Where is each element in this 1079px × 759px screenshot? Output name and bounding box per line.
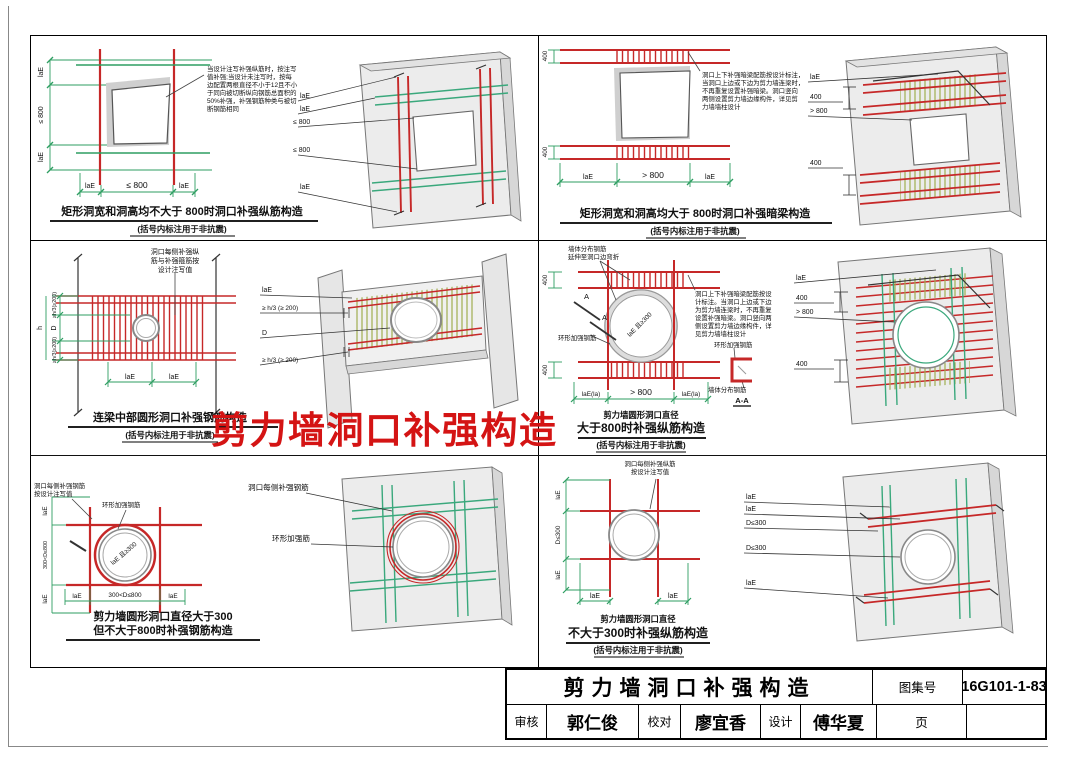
svg-text:边配置两根直径不小于12且不小: 边配置两根直径不小于12且不小 [207,80,298,89]
p6-bot-dim-0: laE [590,593,600,600]
p6-bot-dim-1: laE [668,593,678,600]
p6-3d-label-4: laE [746,580,756,587]
p2-caption: 矩形洞宽和洞高均大于 800时洞口补强暗梁构造 [580,206,811,220]
check-label: 校对 [639,705,681,739]
p3-3d-label-2: D [262,330,267,337]
title-block: 剪力墙洞口补强构造 图集号 16G101-1-83 审核 郭仁俊 校对 廖宜香 … [505,668,1047,740]
p5-bot-dim-2: laE [168,593,177,600]
title-block-row-bottom: 审核 郭仁俊 校对 廖宜香 设计 傅华夏 页 [507,704,1045,739]
p1-3d-label-1: laE [300,106,310,113]
p1-bot-dim-1: ≤ 800 [126,180,148,190]
svg-text:见剪力墙墙柱设计: 见剪力墙墙柱设计 [695,329,747,338]
svg-text:不再重复设置补强暗梁。洞口竖向: 不再重复设置补强暗梁。洞口竖向 [702,86,798,95]
p4-bot-dim-1: > 800 [630,387,652,397]
p6-left-dim-0: laE [555,490,562,499]
p6-left-dim-1: D≤300 [555,525,562,544]
atlas-number-label: 图集号 [873,670,963,704]
p4-section-name: A-A [735,396,749,405]
p2-subcaption: (括号内标注用于非抗震) [650,226,740,236]
svg-text:延伸至洞口边弯折: 延伸至洞口边弯折 [568,252,620,261]
svg-text:筋与补强箍筋按: 筋与补强箍筋按 [151,256,199,265]
p4-section-ring-label: 环形加强钢筋 [714,340,753,349]
p1-left-dim-2: laE [38,152,45,162]
p1-subcaption: (括号内标注用于非抗震) [137,224,227,234]
p3-3d-label-3: ≥ h/3 (≥ 200) [262,357,298,364]
p2-3d-label-1: 400 [810,94,822,101]
p5-3d-label-0: 洞口每侧补强钢筋 [248,482,309,492]
p3-3d-label-1: ≥ h/3 (≥ 200) [262,305,298,312]
p1-3d-label-0: laE [300,93,310,100]
p4-left-dim-0: 400 [542,274,549,285]
panel-circular-opening-small: 洞口每侧补强纵筋 按设计注写值 laE D≤300 laE laE laE 剪力… [538,455,1047,668]
svg-text:洞口上下补强暗梁配筋按设计标注，: 洞口上下补强暗梁配筋按设计标注， [702,70,804,79]
p4-3d-label-3: 400 [796,361,808,368]
p1-3d-view [298,52,521,228]
p1-3d-label-2: ≤ 800 [293,119,310,126]
panel-rect-opening-small: laE ≤ 800 laE laE ≤ 800 laE 当设计注写补强纵筋时，按… [30,35,538,240]
svg-text:断钢筋相同: 断钢筋相同 [207,104,239,113]
sheet-border-bottom [8,746,1048,747]
p2-note: 洞口上下补强暗梁配筋按设计标注， 当洞口上边或下边为剪力墙连梁时， 不再重复设置… [702,70,804,111]
p6-3d-label-3: D≤300 [746,545,766,552]
p5-3d-view [306,467,512,631]
p1-bot-dim-2: laE [179,183,189,190]
svg-text:力墙墙柱设计: 力墙墙柱设计 [702,102,741,111]
drawing-sheet: laE ≤ 800 laE laE ≤ 800 laE 当设计注写补强纵筋时，按… [0,0,1079,759]
drawing-title: 剪力墙洞口补强构造 [507,670,873,704]
p4-ring-label: 环形加强钢筋 [558,333,597,342]
p2-left-dim-1: 400 [542,146,549,157]
svg-text:洞口每侧补强纵筋: 洞口每侧补强纵筋 [624,459,676,468]
p4-3d-view [794,248,1016,424]
svg-text:当洞口上边或下边为剪力墙连梁时，: 当洞口上边或下边为剪力墙连梁时， [702,78,804,87]
p1-left-dim-1: ≤ 800 [38,106,45,123]
p6-3d-label-0: laE [746,494,756,501]
p6-caption2: 不大于300时补强纵筋构造 [568,625,709,640]
p5-ring-label: 环形加强钢筋 [102,500,141,509]
svg-text:计标注。当洞口上边或下边: 计标注。当洞口上边或下边 [695,297,772,306]
p4-subcaption: (括号内标注用于非抗震) [596,440,686,450]
p5-left-dim-0: laE [42,506,49,515]
check-name: 廖宜香 [681,705,761,739]
svg-text:洞口每侧补强钢筋: 洞口每侧补强钢筋 [34,481,86,490]
p4-caption2: 大于800时补强纵筋构造 [577,420,706,435]
sheet-main-title: 剪力墙洞口补强构造 [211,400,558,454]
svg-text:值补强;当设计未注写时，按每: 值补强;当设计未注写时，按每 [207,72,292,81]
p6-subcaption: (括号内标注用于非抗震) [593,645,683,655]
p3-left-dim-2: ≥h/3(≥200) [52,337,58,363]
p3-bot-dim-1: laE [169,374,179,381]
p6-note: 洞口每侧补强纵筋 按设计注写值 [624,459,676,476]
svg-text:洞口每侧补强纵: 洞口每侧补强纵 [151,247,199,256]
title-block-row-top: 剪力墙洞口补强构造 图集号 16G101-1-83 [507,670,1045,704]
review-label: 审核 [507,705,547,739]
p4-section-dist-label: 墙体分布钢筋 [708,385,747,394]
p1-caption: 矩形洞宽和洞高均不大于 800时洞口补强纵筋构造 [61,204,303,218]
panel-circular-opening-large: 墙体分布钢筋 延伸至洞口边弯折 400 400 A A 环形加强钢筋 laE 且… [538,240,1047,455]
svg-text:两侧设置剪力墙边缘构件，详见剪: 两侧设置剪力墙边缘构件，详见剪 [702,94,798,103]
p5-left-dim-2: laE [42,594,49,603]
p1-left-dim-0: laE [38,67,45,77]
p2-3d-view [808,47,1021,225]
p3-left-dim-1: D [51,325,58,330]
svg-text:洞口上下补强暗梁配筋按设: 洞口上下补强暗梁配筋按设 [695,289,772,298]
p5-left-dim-1: 300<D≤800 [43,541,49,569]
p1-3d-label-3: ≤ 800 [293,147,310,154]
p6-elevation [563,477,700,605]
p3-height-dim: h [37,326,44,330]
svg-text:按设计注写值: 按设计注写值 [631,467,670,476]
p1-elevation [47,49,212,197]
p2-bot-dim-2: laE [705,174,715,181]
svg-text:设置补强暗梁。洞口竖向两: 设置补强暗梁。洞口竖向两 [695,313,772,322]
p1-note: 当设计注写补强纵筋时，按注写 值补强;当设计未注写时，按每 边配置两根直径不小于… [207,64,298,113]
p5-caption1: 剪力墙圆形洞口直径大于300 [93,609,232,623]
page-value-blank [967,705,1045,739]
panel-rect-opening-large: 400 400 laE > 800 laE 洞口上下补强暗梁配筋按设计标注， 当… [538,35,1047,240]
p5-note: 洞口每侧补强钢筋 按设计注写值 [34,481,86,498]
page-label: 页 [877,705,967,739]
p4-caption1: 剪力墙圆形洞口直径 [603,410,679,420]
p1-bot-dim-0: laE [85,183,95,190]
p6-caption1: 剪力墙圆形洞口直径 [600,614,676,624]
svg-text:于同向被切断纵向钢筋总面积的: 于同向被切断纵向钢筋总面积的 [207,88,296,97]
p4-bot-dim-2: laE(la) [682,391,700,398]
p6-3d-label-2: D≤300 [746,520,766,527]
p3-left-dim-0: ≥h/3(≥200) [52,292,58,318]
sheet-border-left [8,6,9,746]
p2-left-dim-0: 400 [542,50,549,61]
p2-3d-label-0: laE [810,74,820,81]
svg-text:50%补强，补强钢筋种类与被切: 50%补强，补强钢筋种类与被切 [207,96,296,105]
p3-subcaption: (括号内标注用于非抗震) [125,430,215,440]
p6-left-dim-2: laE [555,570,562,579]
p5-caption2: 但不大于800时补强钢筋构造 [92,623,233,637]
p4-section-letter-1: A [584,292,590,301]
p2-3d-label-2: > 800 [810,108,828,115]
atlas-number-value: 16G101-1-83 [963,670,1045,704]
svg-text:墙体分布钢筋: 墙体分布钢筋 [568,244,607,253]
design-name: 傅华夏 [801,705,877,739]
p5-bot-dim-1: 300<D≤800 [108,592,142,599]
p4-3d-label-2: > 800 [796,309,814,316]
svg-text:当设计注写补强纵筋时，按注写: 当设计注写补强纵筋时，按注写 [207,64,296,73]
p4-left-dim-1: 400 [542,364,549,375]
p4-note-top: 墙体分布钢筋 延伸至洞口边弯折 [568,244,620,261]
p2-3d-label-3: 400 [810,160,822,167]
review-name: 郭仁俊 [547,705,639,739]
panel-circular-opening-medium: 洞口每侧补强钢筋 按设计注写值 环形加强钢筋 laE 且≥300 laE 300… [30,455,538,668]
p2-bot-dim-1: > 800 [642,170,664,180]
p3-3d-label-0: laE [262,287,272,294]
p5-bot-dim-0: laE [72,593,81,600]
p4-3d-label-0: laE [796,275,806,282]
p2-bot-dim-0: laE [583,174,593,181]
p3-bot-dim-0: laE [125,374,135,381]
svg-text:为剪力墙连梁时，不再重复: 为剪力墙连梁时，不再重复 [695,305,772,314]
p6-3d-label-1: laE [746,506,756,513]
svg-text:设计注写值: 设计注写值 [158,265,193,274]
p6-3d-view [744,463,1013,641]
design-label: 设计 [761,705,801,739]
svg-text:按设计注写值: 按设计注写值 [34,489,73,498]
p4-note: 洞口上下补强暗梁配筋按设 计标注。当洞口上边或下边 为剪力墙连梁时，不再重复 设… [695,289,772,338]
p4-3d-label-1: 400 [796,295,808,302]
p5-3d-label-1: 环形加强筋 [272,533,310,543]
p3-note: 洞口每侧补强纵 筋与补强箍筋按 设计注写值 [151,247,199,274]
p1-3d-label-4: laE [300,184,310,191]
p4-bot-dim-0: laE(la) [582,391,600,398]
p3-elevation [46,254,236,416]
p2-elevation [548,50,733,187]
svg-text:侧设置剪力墙边缘构件，详: 侧设置剪力墙边缘构件，详 [695,321,772,330]
